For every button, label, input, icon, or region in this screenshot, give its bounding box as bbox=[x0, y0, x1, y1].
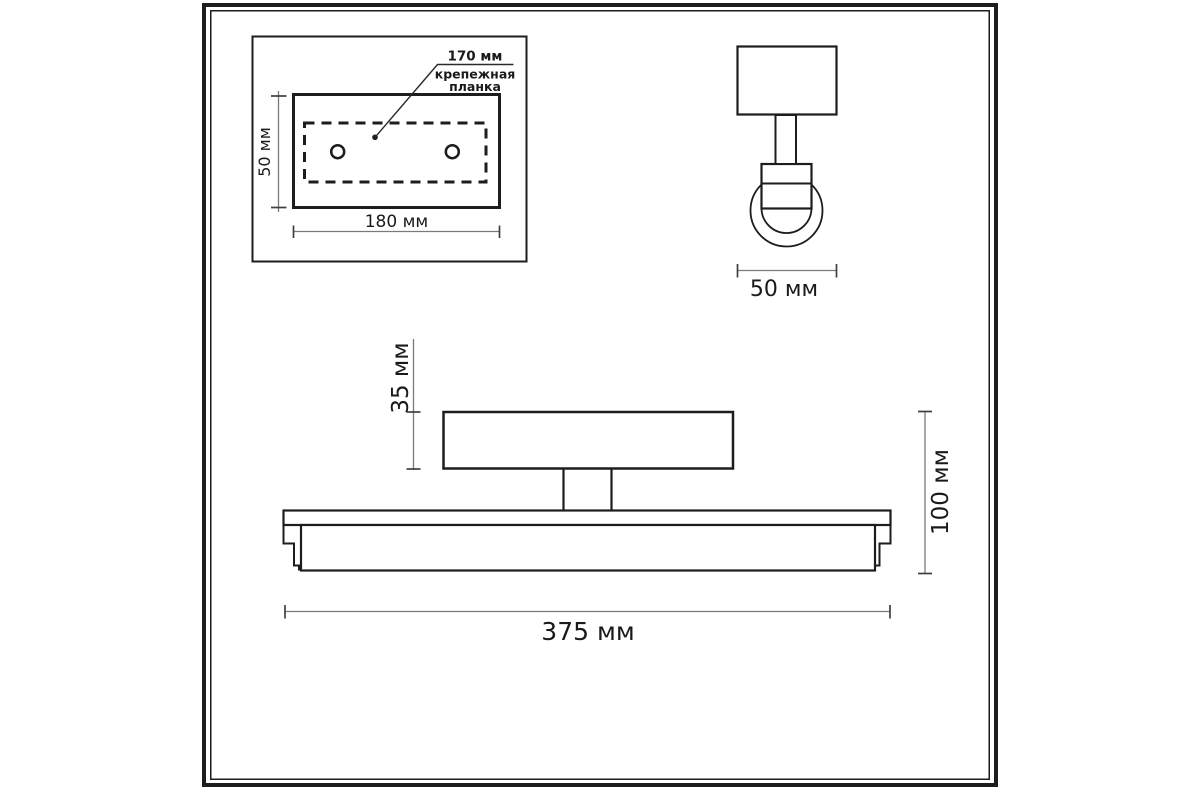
side-canopy bbox=[738, 47, 837, 115]
side-stem bbox=[776, 115, 797, 164]
page-frame-inner bbox=[211, 11, 990, 780]
front-view: 35 мм 100 мм 375 мм bbox=[284, 339, 955, 646]
front-backplate bbox=[444, 412, 734, 469]
front-top-strip bbox=[284, 511, 891, 526]
front-right-end-step bbox=[875, 525, 891, 571]
label-mounting-strip-line2: планка bbox=[449, 79, 501, 94]
mounting-plate-view: 170 мм крепежная планка 50 мм 180 мм bbox=[253, 37, 527, 262]
front-left-end-step bbox=[284, 525, 300, 571]
side-view: 50 мм bbox=[738, 47, 837, 303]
screw-hole-left bbox=[331, 145, 344, 158]
dim-plate-height-label: 50 мм bbox=[255, 127, 274, 177]
front-diffuser-body bbox=[301, 525, 875, 571]
label-inner-width: 170 мм bbox=[448, 49, 503, 65]
screw-hole-right bbox=[446, 145, 459, 158]
lamp-holder-bracket bbox=[762, 164, 812, 209]
dim-total-width-label: 375 мм bbox=[541, 617, 634, 646]
dim-depth-label: 50 мм bbox=[750, 277, 818, 302]
technical-drawing-canvas: 170 мм крепежная планка 50 мм 180 мм 50 … bbox=[0, 0, 1200, 800]
drawing-page: 170 мм крепежная планка 50 мм 180 мм 50 … bbox=[0, 0, 1200, 800]
dim-backplate-height-label: 35 мм bbox=[388, 342, 414, 413]
dim-plate-width-label: 180 мм bbox=[365, 212, 429, 232]
dim-total-height-label: 100 мм bbox=[928, 449, 954, 535]
